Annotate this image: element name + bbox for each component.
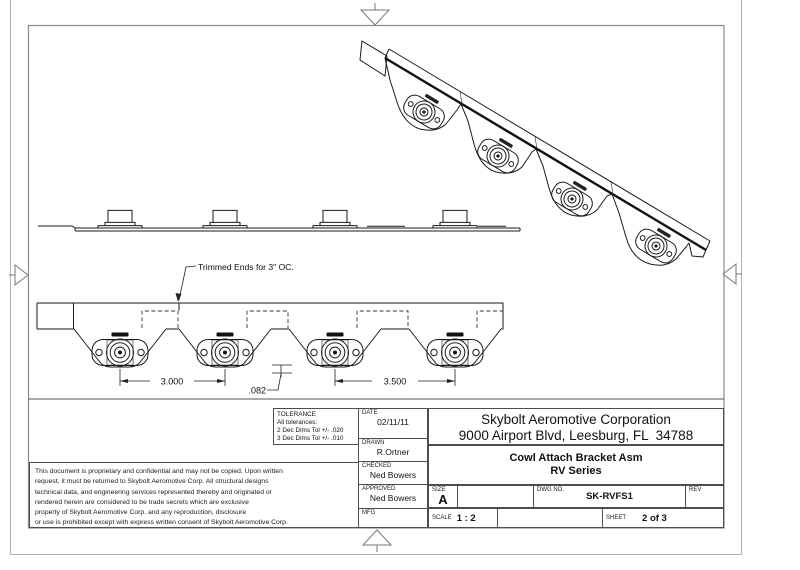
- front-receptacle: [307, 333, 363, 367]
- approved-label: APPROVED: [359, 485, 427, 493]
- side-receptacle-bump: [203, 210, 247, 227]
- dim-arrow: [120, 379, 128, 383]
- rev-cell: REV: [685, 485, 724, 508]
- tolerance-line: 3 Dec Dims Tol +/- .010: [274, 435, 358, 443]
- checked-cell: CHECKED Ned Bowers: [358, 461, 428, 485]
- company-name: Skybolt Aeromotive Corporation: [481, 412, 671, 427]
- size-cell: SIZE A: [428, 485, 458, 508]
- side-receptacle-bump: [433, 210, 477, 227]
- tolerance-title: TOLERANCE: [274, 409, 358, 419]
- side-receptacle-bump: [313, 210, 357, 227]
- dim-3500-label: 3.500: [384, 377, 407, 387]
- front-view: [37, 303, 503, 367]
- dim-arrow: [335, 379, 343, 383]
- drawn-value: R.Ortner: [359, 447, 427, 457]
- checked-label: CHECKED: [359, 462, 427, 470]
- front-receptacle: [197, 333, 253, 367]
- fold-marker-top: [361, 3, 389, 25]
- side-receptacle-bump: [98, 210, 142, 227]
- front-receptacle: [92, 333, 148, 367]
- checked-value: Ned Bowers: [359, 470, 427, 480]
- sheet-label: SHEET: [603, 515, 626, 522]
- drawing-title-cell: Cowl Attach Bracket Asm RV Series: [428, 445, 724, 485]
- tolerance-line: All tolerances:: [274, 419, 358, 427]
- company-cell: Skybolt Aeromotive Corporation 9000 Airp…: [428, 408, 724, 445]
- rev-label: REV: [686, 486, 723, 494]
- sheet-value: 2 of 3: [642, 513, 667, 524]
- mfg-label: MFG: [359, 509, 427, 517]
- dwg-no-cell: DWG NO. SK-RVFS1: [533, 485, 686, 508]
- drawing-title: Cowl Attach Bracket Asm: [429, 452, 723, 465]
- date-label: DATE: [359, 409, 427, 417]
- dim-arrow: [447, 379, 455, 383]
- fold-marker-left: [9, 265, 28, 285]
- blank-cell: [457, 485, 534, 508]
- leader-arrow: [176, 293, 182, 302]
- dim-3000-label: 3.000: [161, 377, 184, 387]
- company-address: 9000 Airport Blvd, Leesburg, FL 34788: [459, 428, 693, 443]
- tolerance-block: TOLERANCE All tolerances: 2 Dec Dims Tol…: [273, 408, 359, 445]
- fold-marker-right: [723, 264, 742, 284]
- date-value: 02/11/11: [359, 417, 427, 427]
- annotation-trimmed-ends: Trimmed Ends for 3" OC.: [176, 262, 294, 302]
- dwg-no-label: DWG NO.: [534, 486, 564, 494]
- mfg-cell: MFG: [358, 508, 428, 528]
- tolerance-line: 2 Dec Dims Tol +/- .020: [274, 427, 358, 435]
- sheet-cell: SHEET 2 of 3: [602, 508, 724, 528]
- date-cell: DATE 02/11/11: [358, 408, 428, 439]
- drawing-series: RV Series: [429, 465, 723, 478]
- trimmed-ends-note: Trimmed Ends for 3" OC.: [198, 262, 294, 272]
- dim-082-label: .082: [248, 386, 266, 396]
- isometric-view: [360, 41, 710, 266]
- drawn-cell: DRAWN R.Ortner: [358, 438, 428, 462]
- side-view: [38, 210, 520, 231]
- dim-arrow: [217, 379, 225, 383]
- front-receptacle: [427, 333, 483, 367]
- blank-cell: [497, 508, 603, 528]
- scale-label: SCALE: [429, 515, 452, 522]
- scale-value: 1 : 2: [457, 513, 476, 524]
- size-value: A: [429, 494, 457, 506]
- scale-cell: SCALE 1 : 2: [428, 508, 498, 528]
- fold-marker-bottom: [363, 530, 391, 552]
- dimensions: 3.000 3.500 .082: [120, 365, 455, 396]
- approved-value: Ned Bowers: [359, 493, 427, 503]
- approved-cell: APPROVED Ned Bowers: [358, 484, 428, 509]
- proprietary-note: This document is proprietary and confide…: [29, 462, 359, 528]
- drawn-label: DRAWN: [359, 439, 427, 447]
- iso-trimmed-end-tab: [360, 41, 387, 76]
- approval-block: DATE 02/11/11 DRAWN R.Ortner CHECKED Ned…: [358, 408, 428, 528]
